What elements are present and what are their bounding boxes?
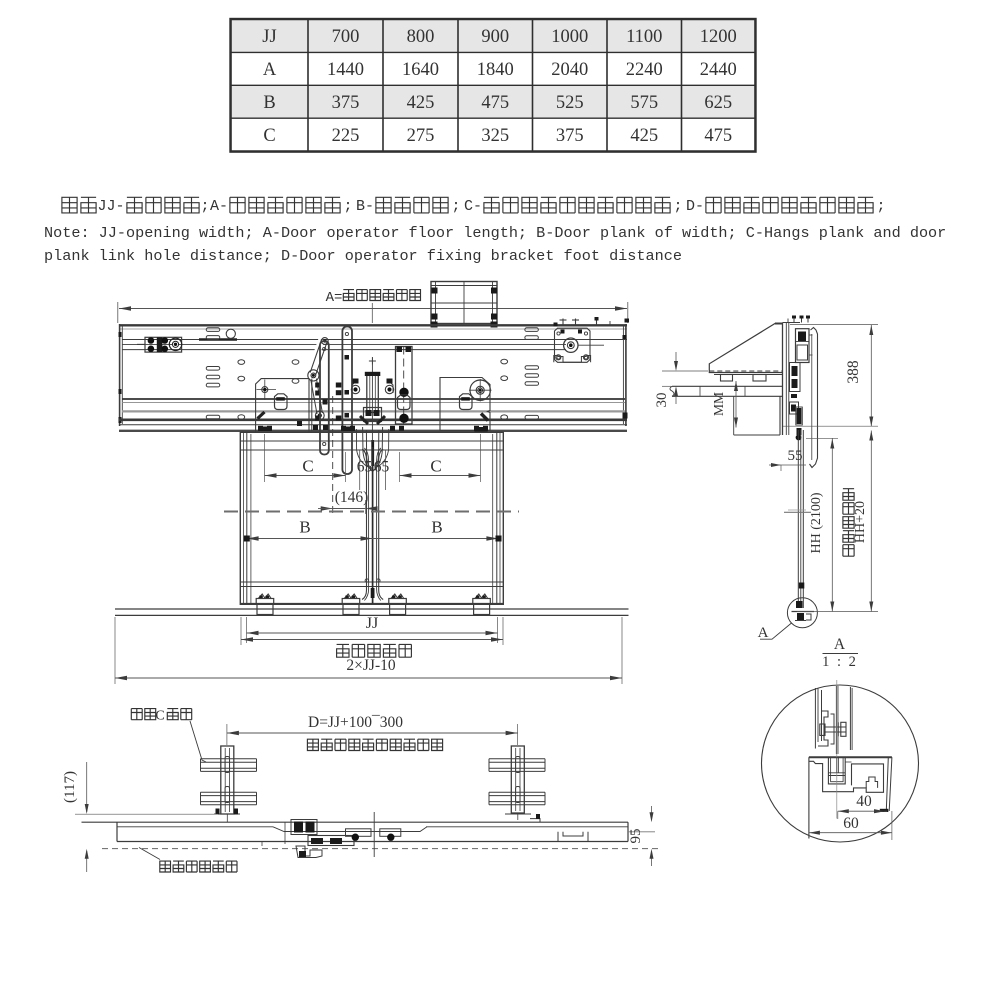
svg-text:¯300: ¯300 [371, 714, 403, 731]
svg-text:MM: MM [711, 392, 726, 416]
svg-text:525: 525 [556, 93, 584, 113]
svg-text:900: 900 [481, 27, 509, 47]
svg-text:625: 625 [704, 93, 732, 113]
svg-text:1100: 1100 [626, 27, 662, 47]
svg-text:JJ: JJ [366, 615, 378, 632]
svg-text:A: A [263, 60, 277, 80]
svg-text:C: C [155, 709, 164, 724]
svg-text:65: 65 [357, 459, 373, 476]
svg-text:800: 800 [407, 27, 435, 47]
svg-text:30: 30 [654, 393, 670, 408]
svg-text:55: 55 [788, 448, 803, 464]
svg-text:1440: 1440 [327, 60, 364, 80]
svg-text:1200: 1200 [700, 27, 737, 47]
svg-text:225: 225 [332, 126, 360, 146]
svg-text:(146): (146) [335, 489, 369, 506]
svg-text:475: 475 [481, 93, 509, 113]
svg-text:60: 60 [843, 815, 859, 832]
svg-text:plank link hole distance; D-Do: plank link hole distance; D-Door operato… [44, 247, 682, 265]
svg-text:B-: B- [356, 198, 374, 215]
svg-text:1640: 1640 [402, 60, 439, 80]
svg-text:575: 575 [630, 93, 658, 113]
svg-text:A: A [758, 625, 769, 641]
svg-text:375: 375 [332, 93, 360, 113]
svg-text:700: 700 [332, 27, 360, 47]
svg-text:C-: C- [464, 198, 482, 215]
svg-text:2440: 2440 [700, 60, 737, 80]
svg-text:425: 425 [630, 126, 658, 146]
svg-text:HH (2100): HH (2100) [809, 492, 824, 553]
svg-text:275: 275 [407, 126, 435, 146]
svg-text:;: ; [343, 198, 352, 215]
svg-text:475: 475 [704, 126, 732, 146]
svg-text:C: C [302, 457, 313, 476]
svg-text:Note: JJ-opening width; A-Door: Note: JJ-opening width; A-Door operator … [44, 224, 946, 242]
svg-text:;: ; [451, 198, 460, 215]
svg-text:1 : 2: 1 : 2 [822, 654, 858, 670]
svg-text:40: 40 [856, 793, 872, 810]
svg-text:C: C [263, 126, 275, 146]
svg-text:425: 425 [407, 93, 435, 113]
svg-text:D=JJ+100: D=JJ+100 [308, 714, 372, 731]
svg-text:95: 95 [628, 829, 644, 844]
svg-text:375: 375 [556, 126, 584, 146]
svg-text:65: 65 [374, 459, 390, 476]
svg-text:C: C [430, 457, 441, 476]
svg-text:B: B [431, 518, 442, 537]
svg-text:JJ: JJ [262, 27, 276, 47]
svg-text:;: ; [200, 198, 209, 215]
svg-text:2040: 2040 [551, 60, 588, 80]
svg-text:B: B [263, 93, 275, 113]
svg-text:325: 325 [481, 126, 509, 146]
svg-text:2240: 2240 [626, 60, 663, 80]
svg-text:1000: 1000 [551, 27, 588, 47]
svg-text:2×JJ-10: 2×JJ-10 [346, 657, 395, 674]
svg-text:D-: D- [686, 198, 704, 215]
svg-text:;: ; [673, 198, 682, 215]
svg-text:(117): (117) [62, 771, 78, 803]
svg-text:JJ-: JJ- [97, 198, 124, 215]
svg-text:;: ; [876, 198, 885, 215]
svg-text:1840: 1840 [477, 60, 514, 80]
svg-text:HH+20: HH+20 [853, 501, 868, 543]
svg-text:B: B [299, 518, 310, 537]
svg-text:388: 388 [845, 360, 862, 384]
svg-text:A: A [834, 636, 846, 653]
svg-text:A=: A= [326, 290, 343, 306]
svg-text:A-: A- [210, 198, 228, 215]
